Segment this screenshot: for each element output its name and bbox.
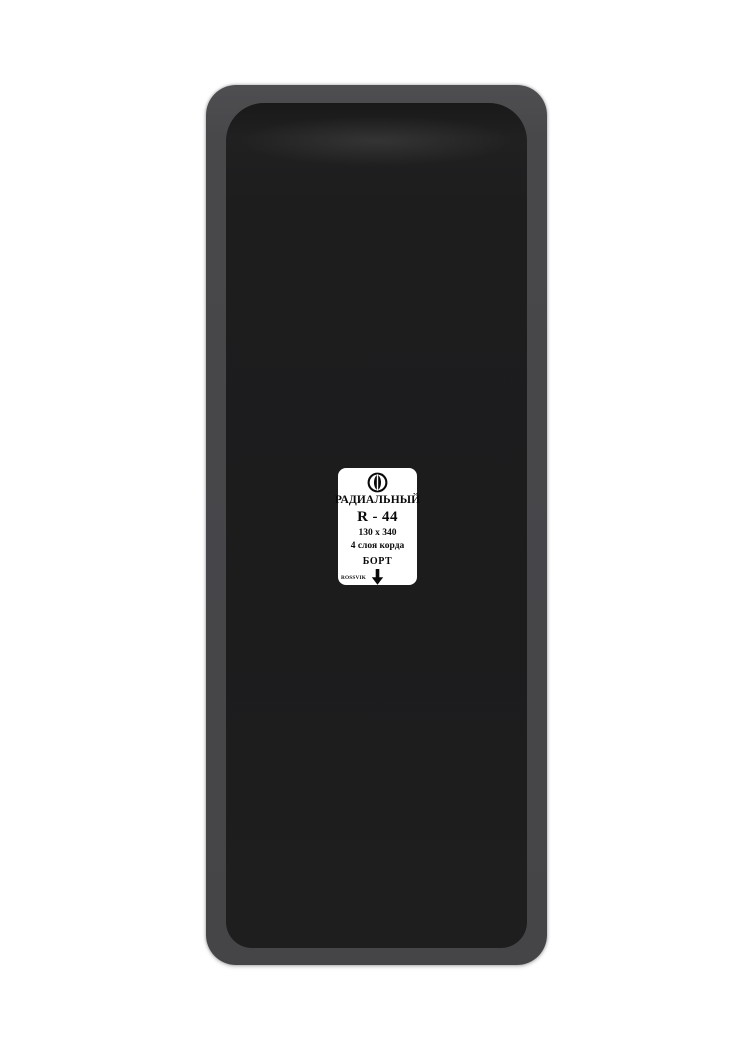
label-bead: БОРТ [363, 557, 393, 567]
label-type: РАДИАЛЬНЫЙ [335, 495, 420, 507]
down-arrow-icon [371, 569, 384, 585]
tire-patch: РАДИАЛЬНЫЙ R - 44 130 x 340 4 слоя корда… [206, 85, 547, 965]
product-label: РАДИАЛЬНЫЙ R - 44 130 x 340 4 слоя корда… [338, 468, 417, 585]
label-model: R - 44 [357, 510, 398, 525]
label-size: 130 x 340 [359, 529, 397, 539]
label-cord-plies: 4 слоя корда [351, 542, 405, 552]
product-photo: РАДИАЛЬНЫЙ R - 44 130 x 340 4 слоя корда… [0, 0, 750, 1060]
rossvik-logo-icon [367, 472, 388, 493]
label-brand: ROSSVIK [341, 576, 366, 581]
